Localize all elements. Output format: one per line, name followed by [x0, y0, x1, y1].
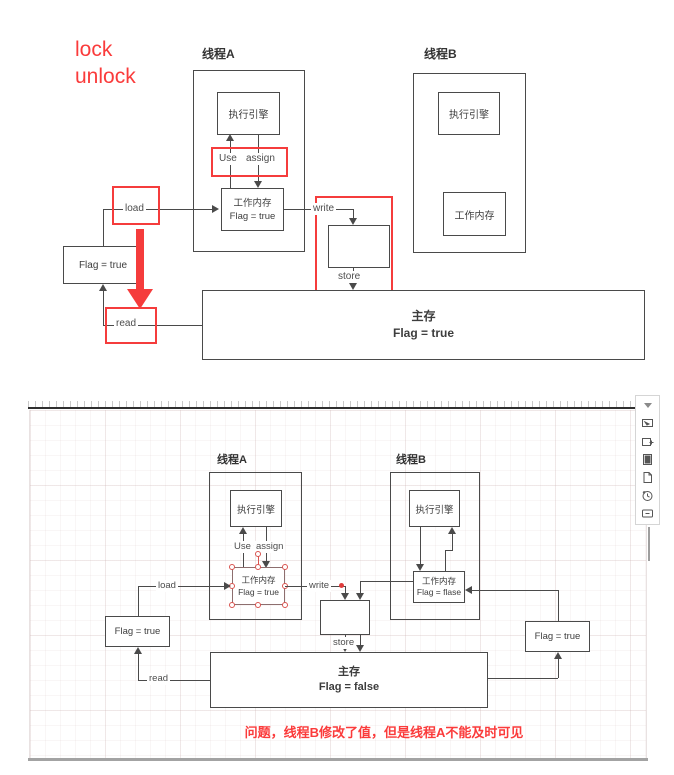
collapse-caret-icon[interactable]	[640, 398, 655, 413]
arrowhead	[224, 582, 231, 590]
wm-value: Flag = true	[238, 586, 279, 598]
problem-annotation: 问题，线程B修改了值，但是线程A不能及时可见	[228, 722, 540, 741]
selection-handle[interactable]	[282, 564, 288, 570]
scrollbar-segment[interactable]	[648, 527, 650, 561]
arrowhead	[239, 527, 247, 534]
bottom-right-flag-box[interactable]: Flag = true	[525, 621, 590, 652]
comment-icon[interactable]	[640, 506, 655, 521]
arrowhead	[212, 205, 219, 213]
main-memory-value: Flag = false	[319, 680, 379, 695]
connector	[558, 658, 559, 678]
top-thread-a-title: 线程A	[202, 45, 235, 62]
top-thread-a-engine-box: 执行引擎	[217, 92, 280, 135]
wm-value: Flag = flase	[417, 587, 461, 598]
panel-top-border	[28, 407, 648, 409]
wm-title: 工作内存	[422, 576, 456, 587]
arrowhead	[134, 647, 142, 654]
arrowhead	[254, 181, 262, 188]
flag-value: Flag = true	[535, 631, 581, 642]
new-page-icon[interactable]	[640, 470, 655, 485]
arrowhead	[99, 284, 107, 291]
connector	[138, 653, 139, 680]
arrowhead	[356, 593, 364, 600]
bottom-thread-a-title: 线程A	[217, 451, 247, 467]
load-label: load	[156, 580, 178, 592]
add-frame-icon[interactable]	[640, 434, 655, 449]
store-label: store	[336, 271, 362, 283]
bottom-thread-a-engine-box[interactable]: 执行引擎	[230, 490, 282, 527]
connector	[138, 586, 139, 616]
selection-handle[interactable]	[255, 564, 261, 570]
connector	[558, 590, 559, 621]
arrowhead	[448, 527, 456, 534]
top-left-flag-box: Flag = true	[63, 246, 143, 284]
history-icon[interactable]	[640, 488, 655, 503]
wm-title: 工作内存	[455, 207, 495, 222]
bottom-main-memory-box[interactable]: 主存 Flag = false	[210, 652, 488, 708]
flag-value: Flag = true	[115, 626, 161, 637]
connector	[445, 550, 446, 571]
wm-title: 工作内存	[233, 197, 271, 210]
connector	[138, 586, 224, 587]
rotation-handle[interactable]	[255, 551, 261, 557]
connector	[452, 533, 453, 550]
wm-value: Flag = true	[230, 210, 276, 223]
arrowhead	[416, 564, 424, 571]
arrowhead	[341, 593, 349, 600]
connector	[472, 590, 558, 591]
page: lock unlock 线程A 线程B 执行引擎 工作内存 Flag = tru…	[0, 0, 674, 775]
connector	[103, 291, 104, 325]
lock-unlock-annotation: lock unlock	[75, 36, 136, 90]
main-memory-value: Flag = true	[393, 325, 454, 342]
connector	[103, 209, 104, 246]
top-thread-b-engine-box: 执行引擎	[438, 92, 500, 135]
connection-endpoint-dot	[339, 583, 344, 588]
arrowhead	[226, 134, 234, 141]
notebook-icon[interactable]	[640, 452, 655, 467]
connector	[420, 527, 421, 565]
arrowhead	[356, 645, 364, 652]
arrowhead	[554, 652, 562, 659]
red-arrow-head	[127, 289, 153, 309]
engine-label: 执行引擎	[415, 502, 453, 516]
engine-label: 执行引擎	[237, 502, 275, 516]
write-label: write	[311, 203, 336, 215]
connector	[488, 678, 558, 679]
bottom-thread-b-working-memory-box[interactable]: 工作内存 Flag = flase	[413, 571, 465, 603]
use-label: Use	[217, 153, 239, 165]
connector	[445, 550, 453, 551]
selection-handle[interactable]	[255, 602, 261, 608]
store-label: store	[331, 637, 356, 649]
top-thread-b-working-memory-box: 工作内存	[443, 192, 506, 236]
panel-bottom-border	[28, 758, 648, 761]
assign-label: assign	[244, 153, 277, 165]
red-arrow-shaft	[136, 229, 144, 289]
bottom-buffer-box[interactable]	[320, 600, 370, 635]
editor-toolbar	[635, 395, 660, 525]
main-memory-title: 主存	[338, 665, 360, 680]
flag-value: Flag = true	[79, 260, 127, 271]
bottom-thread-b-engine-box[interactable]: 执行引擎	[409, 490, 460, 527]
write-label: write	[307, 580, 331, 592]
engine-label: 执行引擎	[229, 106, 269, 121]
pointer-flag-icon[interactable]	[640, 416, 655, 431]
arrowhead	[465, 586, 472, 594]
selection-handle[interactable]	[282, 602, 288, 608]
annotation-line: lock	[75, 36, 136, 63]
bottom-left-flag-box[interactable]: Flag = true	[105, 616, 170, 647]
read-label: read	[147, 673, 170, 685]
use-label: Use	[232, 541, 253, 553]
panel-left-border	[29, 410, 30, 758]
wm-title: 工作内存	[241, 574, 275, 586]
bottom-thread-a-working-memory-box[interactable]: 工作内存 Flag = true	[232, 567, 285, 605]
engine-label: 执行引擎	[449, 106, 489, 121]
bottom-thread-b-title: 线程B	[396, 451, 426, 467]
selection-handle[interactable]	[229, 564, 235, 570]
read-label: read	[114, 318, 138, 330]
top-thread-b-title: 线程B	[424, 45, 457, 62]
top-thread-a-working-memory-box: 工作内存 Flag = true	[221, 188, 284, 231]
load-label: load	[123, 203, 146, 215]
selection-handle[interactable]	[229, 602, 235, 608]
annotation-line: unlock	[75, 63, 136, 90]
main-memory-title: 主存	[411, 308, 435, 325]
top-main-memory-box: 主存 Flag = true	[202, 290, 645, 360]
